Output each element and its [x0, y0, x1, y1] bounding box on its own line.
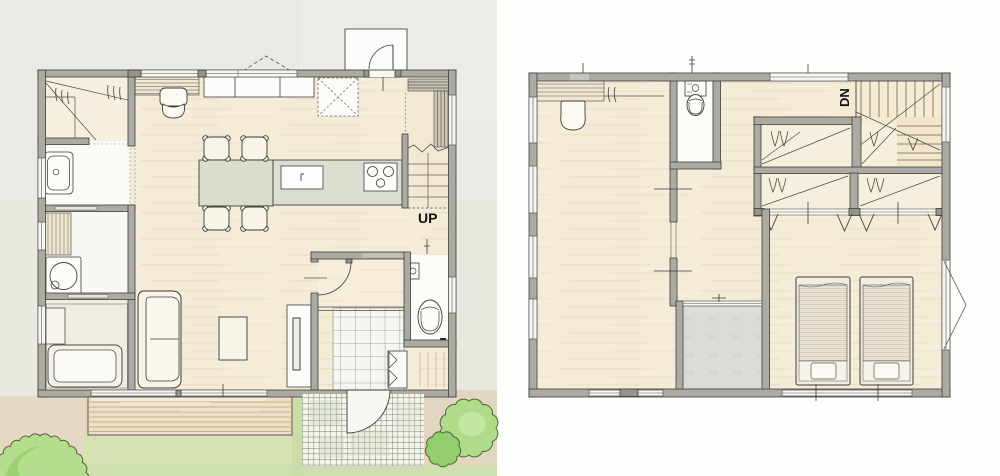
svg-text:UP: UP	[418, 210, 437, 226]
svg-text:DN: DN	[837, 88, 852, 107]
